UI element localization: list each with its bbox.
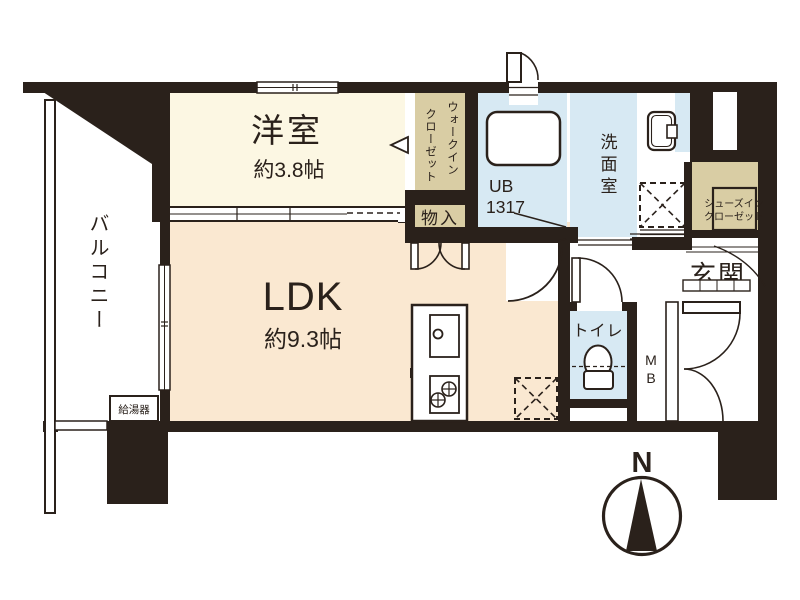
meter-box: MB — [643, 302, 678, 421]
toilet-label: トイレ — [572, 323, 623, 340]
balcony-bottom-rail — [55, 421, 107, 430]
compass-needle-icon — [626, 479, 657, 551]
kitchen — [412, 305, 467, 421]
wall-right — [758, 93, 777, 432]
ldk-size: 約9.3帖 — [264, 326, 342, 352]
ldk-balcony-window — [159, 265, 170, 390]
wall-toilet-right — [627, 302, 637, 421]
western-room-floor — [170, 93, 405, 206]
balcony-railing — [45, 100, 55, 513]
western-room-window — [257, 82, 338, 93]
meter-box-label: MB — [643, 352, 659, 388]
entrance-door-leaf — [683, 302, 740, 313]
toilet-bowl-icon — [584, 346, 613, 390]
wall-wic-ub-divider — [465, 93, 478, 243]
entrance-door-swing-main — [684, 313, 740, 369]
compass-north-label: N — [632, 447, 653, 479]
balcony-label: バルコニー — [86, 213, 108, 333]
water-heater-label: 給湯器 — [118, 403, 150, 416]
western-room-label: 洋室 — [251, 112, 323, 149]
wall-ldk-left-lower — [160, 390, 170, 421]
shoes-closet-label-1: シューズイン — [704, 197, 764, 210]
walk-in-closet-label-2: クローゼット — [424, 108, 437, 183]
wall-shoes-bottom — [692, 230, 758, 238]
entrance-sill — [683, 280, 750, 291]
washing-machine-pan-icon — [648, 112, 677, 150]
service-door-top — [507, 53, 538, 105]
sliding-partition — [170, 206, 405, 222]
service-door-swing — [521, 53, 538, 80]
kitchen-stove-icon — [430, 376, 459, 413]
entrance-door — [683, 302, 740, 421]
storage-label: 物入 — [421, 209, 459, 228]
wall-below-balcony — [107, 421, 168, 504]
wall-bottom — [160, 421, 777, 432]
floor-plan: 給湯器 バルコニー 洋室 約3.8帖 ウォークイン — [0, 0, 800, 600]
wall-ldk-left-upper — [160, 222, 170, 265]
wall-wic-storage-divider — [405, 190, 465, 205]
washroom-counter — [675, 93, 690, 152]
western-room-size: 約3.8帖 — [253, 159, 324, 182]
toilet-door — [572, 258, 622, 302]
kitchen-sink-icon — [430, 315, 459, 357]
ldk-label: LDK — [263, 275, 344, 319]
service-door-leaf — [507, 53, 521, 82]
floor-plan-canvas: 給湯器 バルコニー 洋室 約3.8帖 ウォークイン — [0, 0, 800, 600]
meter-box-door — [666, 302, 678, 421]
unit-bath-label: UB — [489, 176, 513, 196]
shoes-closet-label-2: クローゼット — [704, 211, 764, 223]
entrance-door-swing-child — [684, 369, 723, 421]
wall-ub-bottom-band — [405, 227, 578, 243]
wall-toilet-bottom — [570, 399, 627, 408]
washroom-label: 洗面室 — [598, 133, 618, 199]
ldk: LDK 約9.3帖 — [263, 275, 344, 352]
compass: N — [604, 447, 681, 555]
wall-step-block — [718, 432, 777, 500]
pipe-space-niche — [713, 92, 737, 150]
wall-toilet-top-left — [558, 302, 577, 311]
hall-door — [506, 243, 562, 301]
washroom-entry-threshold — [578, 240, 632, 245]
wall-shoes-left — [684, 162, 692, 250]
bathtub-icon — [487, 112, 560, 165]
walk-in-closet-label-1: ウォークイン — [446, 101, 458, 176]
entrance: 玄関 — [630, 234, 765, 421]
wall-hall-toilet — [558, 243, 570, 421]
